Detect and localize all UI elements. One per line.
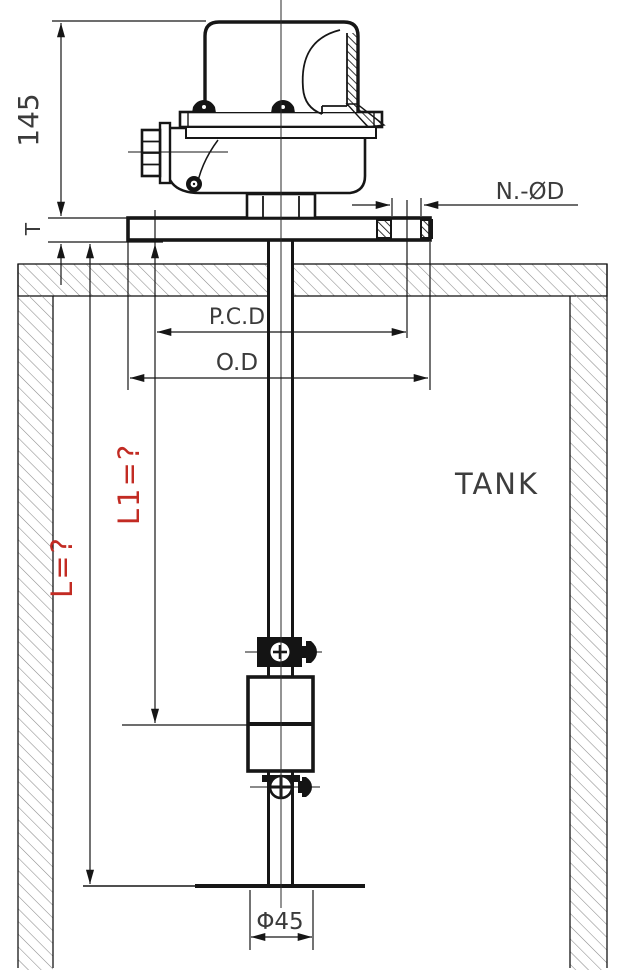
dim-nod-label: N.-ØD — [496, 179, 565, 205]
dim-145-label: 145 — [12, 93, 45, 146]
dim-phi45-label: Φ45 — [256, 909, 303, 935]
technical-drawing-canvas: 145 T N.-ØD P.C.D O.D TANK L1=? L=? Φ45 — [0, 0, 634, 976]
tank-structure — [18, 264, 607, 970]
tank-label: TANK — [454, 467, 539, 501]
dim-T-label: T — [21, 222, 45, 236]
level-sensor-tank-drawing: 145 T N.-ØD P.C.D O.D TANK L1=? L=? Φ45 — [0, 0, 634, 976]
flange-bolt-hole-wall-left — [377, 220, 391, 238]
tank-right-wall — [570, 296, 607, 970]
junction-box — [128, 22, 384, 193]
cap-wall-section — [347, 33, 357, 108]
clamp-lower-screw-knob — [298, 777, 312, 797]
flange-bolt-hole-wall-right — [421, 220, 432, 238]
dim-l1-label: L1=? — [112, 443, 146, 525]
dim-pcd-label: P.C.D — [209, 305, 265, 330]
tank-left-wall — [18, 296, 53, 970]
cable-gland-plate — [160, 123, 170, 183]
dim-od-label: O.D — [216, 350, 258, 376]
tank-top-plate — [18, 264, 607, 296]
dim-l-label: L=? — [45, 536, 79, 598]
mounting-flange — [128, 218, 432, 240]
clamp-upper-screw-knob — [302, 641, 317, 663]
